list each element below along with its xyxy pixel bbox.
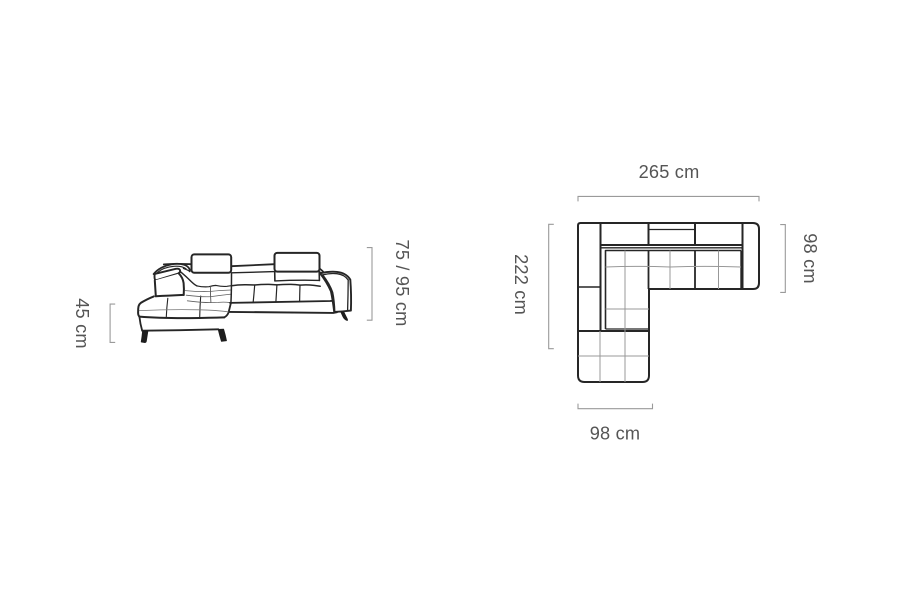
- svg-text:75 / 95 cm: 75 / 95 cm: [392, 240, 412, 327]
- svg-text:222 cm: 222 cm: [511, 254, 531, 315]
- svg-text:45 cm: 45 cm: [72, 298, 92, 349]
- svg-text:98 cm: 98 cm: [800, 233, 820, 284]
- svg-text:98 cm: 98 cm: [590, 424, 641, 444]
- svg-text:265 cm: 265 cm: [639, 162, 700, 182]
